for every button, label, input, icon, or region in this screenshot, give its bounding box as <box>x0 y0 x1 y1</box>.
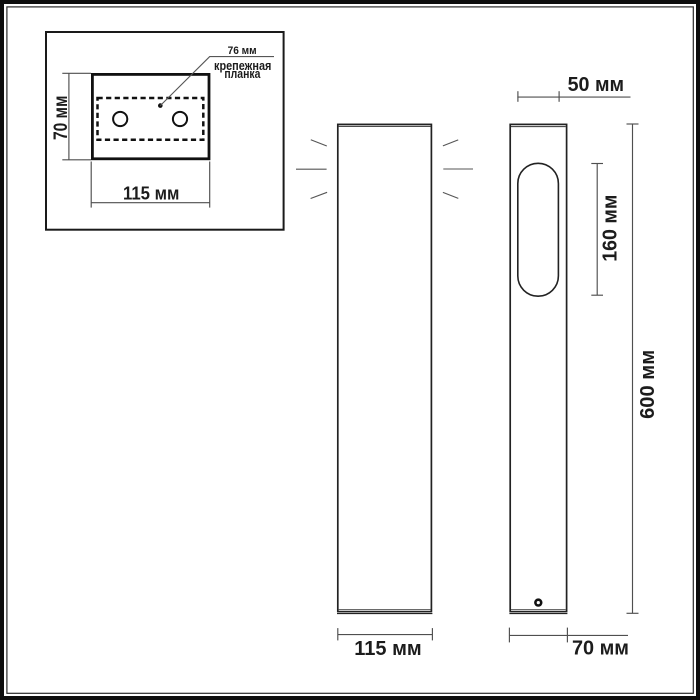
svg-text:70 мм: 70 мм <box>572 638 629 660</box>
svg-text:70 мм: 70 мм <box>51 96 72 141</box>
svg-text:115 мм: 115 мм <box>123 182 180 203</box>
svg-text:600 мм: 600 мм <box>636 350 659 419</box>
svg-text:160 мм: 160 мм <box>599 195 621 262</box>
svg-text:50 мм: 50 мм <box>568 74 625 96</box>
svg-text:планка: планка <box>224 66 261 81</box>
svg-text:76 мм: 76 мм <box>228 45 257 57</box>
svg-text:115 мм: 115 мм <box>354 638 422 660</box>
